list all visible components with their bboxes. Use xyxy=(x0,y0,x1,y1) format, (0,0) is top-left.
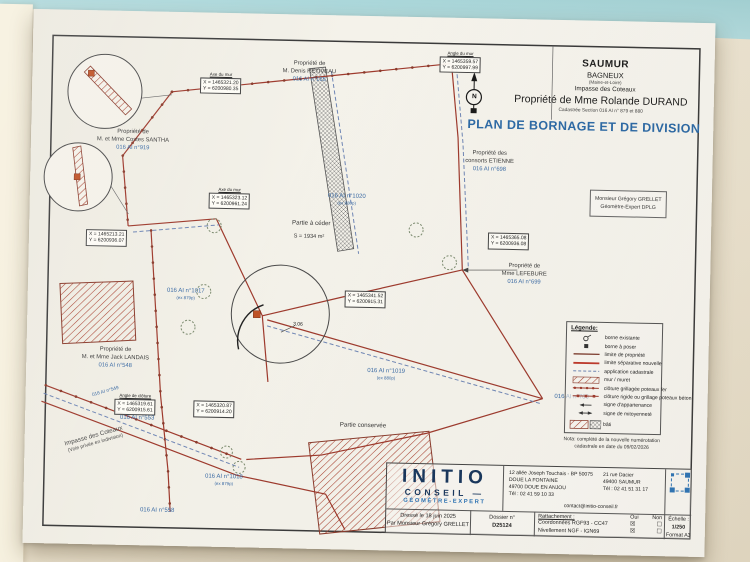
firm-line3: GÉOMÈTRE-EXPERT xyxy=(386,497,502,505)
north-letter: N xyxy=(470,93,479,100)
parcel-ex: (ex 879p) xyxy=(205,481,243,487)
parcel-label-1020: 016 AI n°1020 (ex 880p) xyxy=(328,193,366,206)
coord-y: Y = 6200936.08 xyxy=(491,241,527,248)
dresse-cell: Dressé le 18 juin 2025 Par Monsieur Grég… xyxy=(386,512,470,529)
dimension-value: 3.06 xyxy=(293,321,303,327)
parcel-ref: 016 AI n°548 xyxy=(81,362,148,371)
detail-circle-1 xyxy=(67,54,173,130)
bati-icon xyxy=(569,418,601,431)
commune-name: SAUMUR xyxy=(553,58,659,71)
coordinate-box: X = 1465365.08Y = 6200936.08 xyxy=(488,232,530,249)
firm-addresses: 12 allée Joseph Touchais - BP 50075 DOUE… xyxy=(508,470,665,513)
borne-marker-icon xyxy=(253,311,260,318)
owner-line: consorts ETIENNE xyxy=(465,158,514,167)
dossier-cell: Dossier n° D25124 xyxy=(470,514,534,531)
legend-label: clôture grillagée poteaux fer xyxy=(604,385,667,392)
coord-title: Angle de clôture xyxy=(115,393,157,399)
coordinate-box: Axe du mur X = 1465321.20Y = 6200980.35 xyxy=(200,71,242,94)
dossier-number: D25124 xyxy=(470,522,534,531)
address-line: Tél : 02 41 59 10 33 xyxy=(509,491,595,500)
legend-label: limite de propriété xyxy=(604,352,645,359)
zone-surface: S = 1934 m² xyxy=(294,233,325,240)
commune-block: SAUMUR BAGNEUX (Maine-et-Loire) Impasse … xyxy=(552,58,659,94)
coordinate-box: X = 1465341.52Y = 6200915.31 xyxy=(344,290,386,307)
legend-title: Légende: xyxy=(571,325,659,333)
coord-y: Y = 6200980.35 xyxy=(203,85,239,92)
owner-line: M. et Mme Costes SANTHA xyxy=(97,136,169,145)
parcel-label-558: 016 AI n°558 xyxy=(140,507,175,515)
legend-box: Légende: borne existante borne à poser l… xyxy=(564,321,663,435)
paper-sheet: SAUMUR BAGNEUX (Maine-et-Loire) Impasse … xyxy=(22,9,715,557)
zone-partie-ceder: Partie à céder xyxy=(292,219,331,227)
legend-label: borne existante xyxy=(605,335,640,342)
coord-y: Y = 6200997.99 xyxy=(442,64,478,71)
owner-label-retiveau: Propriété de M. Denis RETIVEAU 016 AI n°… xyxy=(282,60,336,84)
legend-label: mur / muret xyxy=(604,377,630,384)
firm-logo: INITIO CONSEIL — GÉOMÈTRE-EXPERT xyxy=(386,466,503,505)
address-line: Tél : 02 41 51 31 17 xyxy=(603,486,665,494)
owner-label-landais: Propriété de M. et Mme Jack LANDAIS 016 … xyxy=(81,346,149,370)
coordinate-box: X = 1465320.87Y = 6200914.20 xyxy=(193,400,235,417)
address-saumur: 21 rue Dacier 49400 SAUMUR Tél : 02 41 5… xyxy=(603,472,665,494)
coord-y: Y = 6200915.61 xyxy=(117,407,153,414)
parcel-label-1017: 016 AI n°1017 (ex 879p) xyxy=(167,288,205,301)
legend-label: application cadastrale xyxy=(604,369,653,376)
legend-label: limite séparative nouvelle xyxy=(604,360,661,367)
zone-partie-conservee: Partie conservée xyxy=(340,421,387,429)
email: contact@initio-conseil.fr xyxy=(564,503,618,510)
firm-name: INITIO xyxy=(387,466,503,487)
detail-circle-2 xyxy=(43,142,129,214)
coord-y: Y = 6200961.24 xyxy=(212,200,248,207)
parcel-label-1018: 016 AI n°1018 (ex 879p) xyxy=(205,474,243,487)
coord-y: Y = 6200914.20 xyxy=(196,409,232,416)
coord-y: Y = 6200915.31 xyxy=(348,299,384,306)
registration-marks-icon xyxy=(671,473,689,491)
checkbox-oui-row2: ☒ xyxy=(630,529,636,535)
echelle-label: Échelle : xyxy=(666,515,691,524)
coord-y: Y = 6200936.07 xyxy=(89,237,125,244)
oui-non-cell: Oui Non ☒ ☐ ☒ ☐ xyxy=(628,514,664,535)
parcel-label-553: 016 AI n°553 xyxy=(120,415,155,423)
borne-marker-icon xyxy=(74,174,80,180)
address-doue: 12 allée Joseph Touchais - BP 50075 DOUE… xyxy=(509,470,596,499)
parcel-num: 016 AI n°558 xyxy=(140,507,175,515)
owner-line: M. et Mme Jack LANDAIS xyxy=(82,354,149,363)
legend-label: bâti xyxy=(603,422,611,428)
checkbox-non-row2: ☐ xyxy=(656,529,662,535)
legend-label: signe de mitoyenneté xyxy=(603,411,652,418)
parcel-ref: 016 AI n°165 xyxy=(282,76,336,85)
rattachement-cell: Rattachement : Coordonnées RGF93 - CC47 … xyxy=(538,514,628,538)
nota-note: Nota: complété de la nouvelle numérotati… xyxy=(556,436,668,452)
parcel-ex: (ex 880p) xyxy=(328,200,366,206)
geometre-title: Géomètre-Expert DPLG xyxy=(591,203,666,212)
coordinate-box: X = 1465213.21Y = 6200936.07 xyxy=(86,229,128,246)
rattachement-row: Nivellement NGF - IGN69 xyxy=(538,527,628,537)
legend-label: borne à poser xyxy=(605,344,637,351)
parcel-label-1019: 016 AI n°1019 (ex 880p) xyxy=(367,368,405,381)
format-value: Format A3 xyxy=(666,531,691,540)
parcel-ref: 016 AI n°919 xyxy=(97,144,169,153)
geometre-box: Monsieur Grégory GRELLET Géomètre-Expert… xyxy=(589,190,667,219)
owner-label-santha: Propriété de M. et Mme Costes SANTHA 016… xyxy=(97,128,170,153)
echelle-cell: Échelle : 1/250 Format A3 xyxy=(666,515,692,540)
parcel-num: 016 AI n°553 xyxy=(120,415,155,423)
owner-label-lefebure: Propriété de Mme LEFEBURE 016 AI n°699 xyxy=(501,263,547,287)
legend-label: signe d'appartenance xyxy=(603,402,652,409)
dresse-par: Par Monsieur Grégory GRELLET xyxy=(386,520,470,530)
title-block: INITIO CONSEIL — GÉOMÈTRE-EXPERT 12 allé… xyxy=(385,462,691,538)
parcel-ex: (ex 879p) xyxy=(167,295,205,301)
parcel-ref: 016 AI n°699 xyxy=(501,278,546,286)
owner-label-etienne: Propriété des consorts ETIENNE 016 AI n°… xyxy=(465,150,514,174)
owner-line: Mme LEFEBURE xyxy=(502,270,547,278)
photo-scene: SAUMUR BAGNEUX (Maine-et-Loire) Impasse … xyxy=(0,0,750,562)
coordinate-box: Angle de clôture X = 1465319.61Y = 62009… xyxy=(114,393,156,416)
owner-line: M. Denis RETIVEAU xyxy=(283,68,337,77)
signe-mitoyennete-icon xyxy=(569,408,601,418)
coordinate-box: Angle du mur X = 1465359.57Y = 6200997.9… xyxy=(439,50,481,73)
borne-marker-icon xyxy=(88,70,94,76)
coordinate-box: Axe du mur X = 1465323.12Y = 6200961.24 xyxy=(209,187,251,210)
parcel-ref: 016 AI n°698 xyxy=(465,166,514,175)
parcel-ex: (ex 880p) xyxy=(367,375,405,381)
